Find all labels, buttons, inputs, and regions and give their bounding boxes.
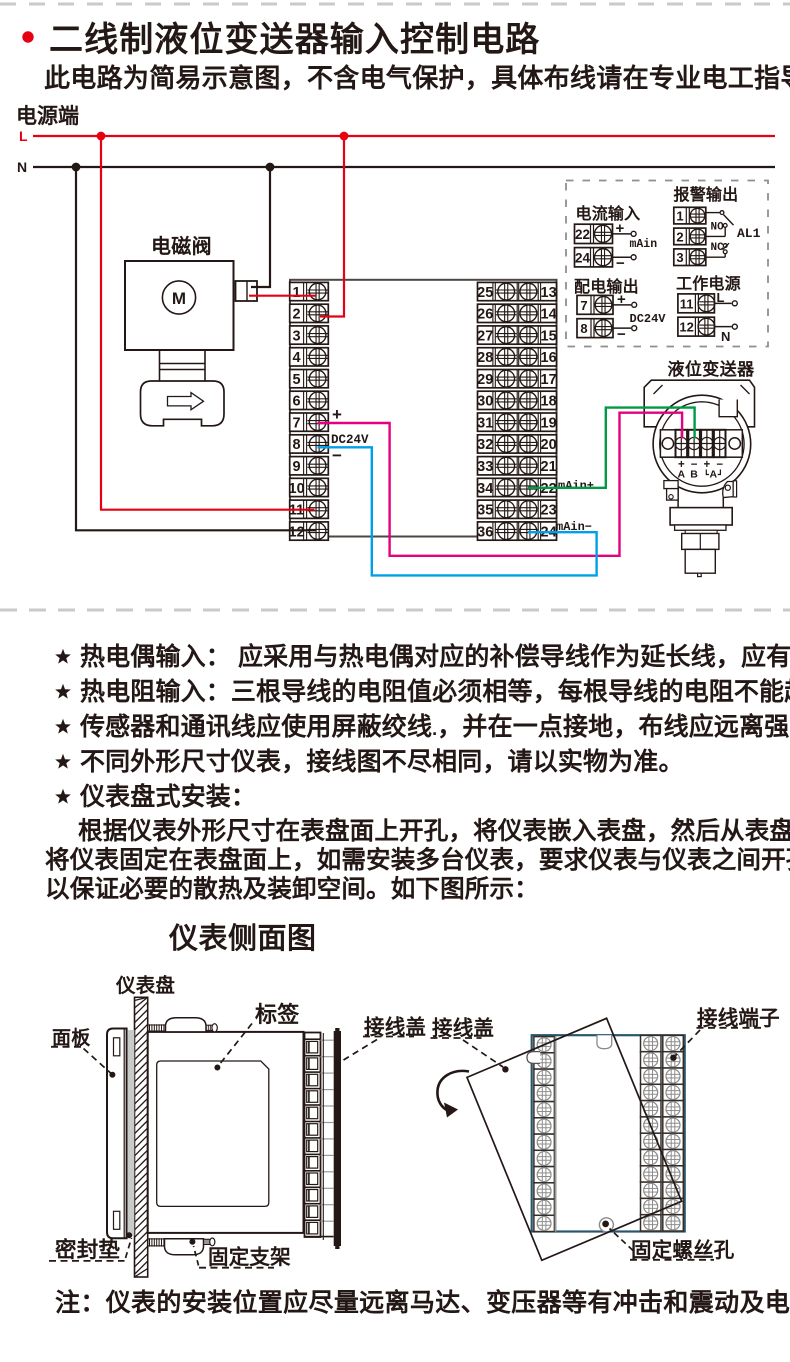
svg-text:仪表侧面图: 仪表侧面图 [168, 922, 317, 955]
svg-text:−: − [332, 446, 342, 465]
svg-text:5: 5 [293, 372, 301, 388]
svg-text:固定支架: 固定支架 [208, 1245, 291, 1269]
svg-text:仪表盘: 仪表盘 [115, 974, 175, 997]
svg-text:DC24V: DC24V [331, 433, 369, 447]
svg-text:密封垫: 密封垫 [55, 1237, 120, 1262]
svg-text:−: − [716, 459, 723, 471]
svg-text:7: 7 [293, 415, 301, 431]
svg-text:31: 31 [477, 415, 493, 431]
svg-text:23: 23 [541, 503, 557, 519]
svg-text:29: 29 [477, 372, 493, 388]
svg-text:22: 22 [575, 227, 590, 242]
svg-text:仪表盘式安装：: 仪表盘式安装： [79, 782, 256, 811]
svg-text:标签: 标签 [255, 1002, 300, 1027]
svg-text:B: B [690, 469, 698, 481]
svg-text:A: A [678, 469, 686, 481]
svg-text:17: 17 [541, 372, 557, 388]
svg-text:10: 10 [289, 481, 305, 497]
svg-text:+: + [617, 291, 626, 308]
svg-text:7: 7 [580, 298, 587, 313]
svg-text:面板: 面板 [52, 1026, 91, 1049]
svg-text:2: 2 [676, 229, 683, 244]
svg-text:电磁阀: 电磁阀 [151, 234, 212, 258]
svg-text:15: 15 [541, 328, 557, 344]
svg-text:配电输出: 配电输出 [574, 277, 639, 296]
svg-text:接线端子: 接线端子 [697, 1006, 780, 1030]
svg-text:12: 12 [289, 524, 305, 540]
svg-text:21: 21 [541, 459, 557, 475]
svg-text:35: 35 [477, 503, 493, 519]
svg-text:工作电源: 工作电源 [676, 274, 741, 293]
svg-text:报警输出: 报警输出 [674, 185, 739, 204]
svg-text:30: 30 [477, 394, 493, 410]
svg-text:36: 36 [477, 524, 493, 540]
svg-text:热电阻输入：三根导线的电阻值必须相等，每根导线的电阻不能超过: 热电阻输入：三根导线的电阻值必须相等，每根导线的电阻不能超过15Ω； [80, 677, 790, 706]
svg-text:电流输入: 电流输入 [576, 204, 641, 223]
svg-text:接线盖: 接线盖 [364, 1015, 426, 1039]
svg-text:+: + [332, 405, 342, 424]
svg-text:二线制液位变送器输入控制电路: 二线制液位变送器输入控制电路 [49, 21, 540, 59]
svg-text:3: 3 [676, 250, 683, 265]
svg-text:AL1: AL1 [737, 226, 761, 241]
svg-text:NO: NO [711, 222, 725, 234]
svg-text:不同外形尺寸仪表，接线图不尽相同，请以实物为准。: 不同外形尺寸仪表，接线图不尽相同，请以实物为准。 [80, 747, 684, 776]
svg-text:4: 4 [293, 350, 301, 366]
svg-text:传感器和通讯线应使用屏蔽绞线.，并在一点接地，布线应远离强电: 传感器和通讯线应使用屏蔽绞线.，并在一点接地，布线应远离强电走线； [79, 712, 790, 741]
svg-text:28: 28 [477, 350, 493, 366]
svg-text:34: 34 [477, 481, 493, 497]
svg-text:mAin+: mAin+ [558, 479, 594, 493]
svg-text:mAin: mAin [630, 238, 658, 251]
svg-text:14: 14 [541, 307, 557, 323]
svg-text:6: 6 [293, 394, 301, 410]
svg-text:A: A [710, 469, 718, 481]
svg-text:26: 26 [477, 307, 493, 323]
svg-text:DC24V: DC24V [630, 312, 667, 326]
svg-text:20: 20 [541, 437, 557, 453]
svg-text:16: 16 [541, 350, 557, 366]
svg-text:9: 9 [293, 459, 301, 475]
svg-text:注：仪表的安装位置应尽量远离马达、变压器等有冲击和震动及电磁: 注：仪表的安装位置应尽量远离马达、变压器等有冲击和震动及电磁干扰的场合。 [55, 1288, 790, 1317]
svg-text:N: N [17, 159, 27, 175]
svg-text:M: M [172, 289, 186, 308]
svg-text:11: 11 [680, 296, 694, 311]
svg-text:18: 18 [541, 394, 557, 410]
svg-text:固定螺丝孔: 固定螺丝孔 [631, 1238, 735, 1262]
svg-text:27: 27 [477, 328, 493, 344]
svg-text:NC: NC [711, 242, 725, 254]
svg-text:此电路为简易示意图，不含电气保护，具体布线请在专业电工指导下: 此电路为简易示意图，不含电气保护，具体布线请在专业电工指导下进行； [44, 63, 790, 93]
svg-text:−: − [617, 326, 626, 343]
svg-text:32: 32 [477, 437, 493, 453]
svg-text:19: 19 [541, 415, 557, 431]
svg-text:根据仪表外形尺寸在表盘面上开孔，将仪表嵌入表盘，然后从表盘背: 根据仪表外形尺寸在表盘面上开孔，将仪表嵌入表盘，然后从表盘背面用固定支架 [78, 816, 790, 845]
svg-text:接线盖: 接线盖 [432, 1016, 494, 1040]
svg-text:L: L [717, 290, 725, 305]
svg-text:8: 8 [293, 437, 301, 453]
svg-text:液位变送器: 液位变送器 [668, 359, 756, 379]
svg-text:25: 25 [477, 285, 493, 301]
svg-text:13: 13 [541, 285, 557, 301]
svg-text:热电偶输入： 应采用与热电偶对应的补偿导线作为延长线，应有屏: 热电偶输入： 应采用与热电偶对应的补偿导线作为延长线，应有屏蔽层； [80, 642, 790, 671]
svg-text:33: 33 [477, 459, 493, 475]
svg-text:N: N [721, 329, 730, 344]
svg-text:12: 12 [679, 320, 693, 335]
svg-text:L: L [19, 128, 28, 144]
svg-text:以保证必要的散热及装卸空间。如下图所示：: 以保证必要的散热及装卸空间。如下图所示： [45, 874, 539, 903]
svg-text:8: 8 [580, 321, 587, 336]
svg-text:+: + [616, 220, 625, 237]
svg-text:3: 3 [293, 328, 301, 344]
svg-text:电源端: 电源端 [16, 105, 79, 128]
svg-text:1: 1 [676, 209, 683, 224]
svg-text:2: 2 [293, 307, 301, 323]
svg-text:24: 24 [575, 250, 591, 265]
svg-text:−: − [616, 255, 625, 272]
svg-text:1: 1 [293, 285, 301, 301]
svg-text:将仪表固定在表盘面上，如需安装多台仪表，要求仪表与仪表之间开: 将仪表固定在表盘面上，如需安装多台仪表，要求仪表与仪表之间开孔间距≥38mm， [45, 845, 790, 874]
